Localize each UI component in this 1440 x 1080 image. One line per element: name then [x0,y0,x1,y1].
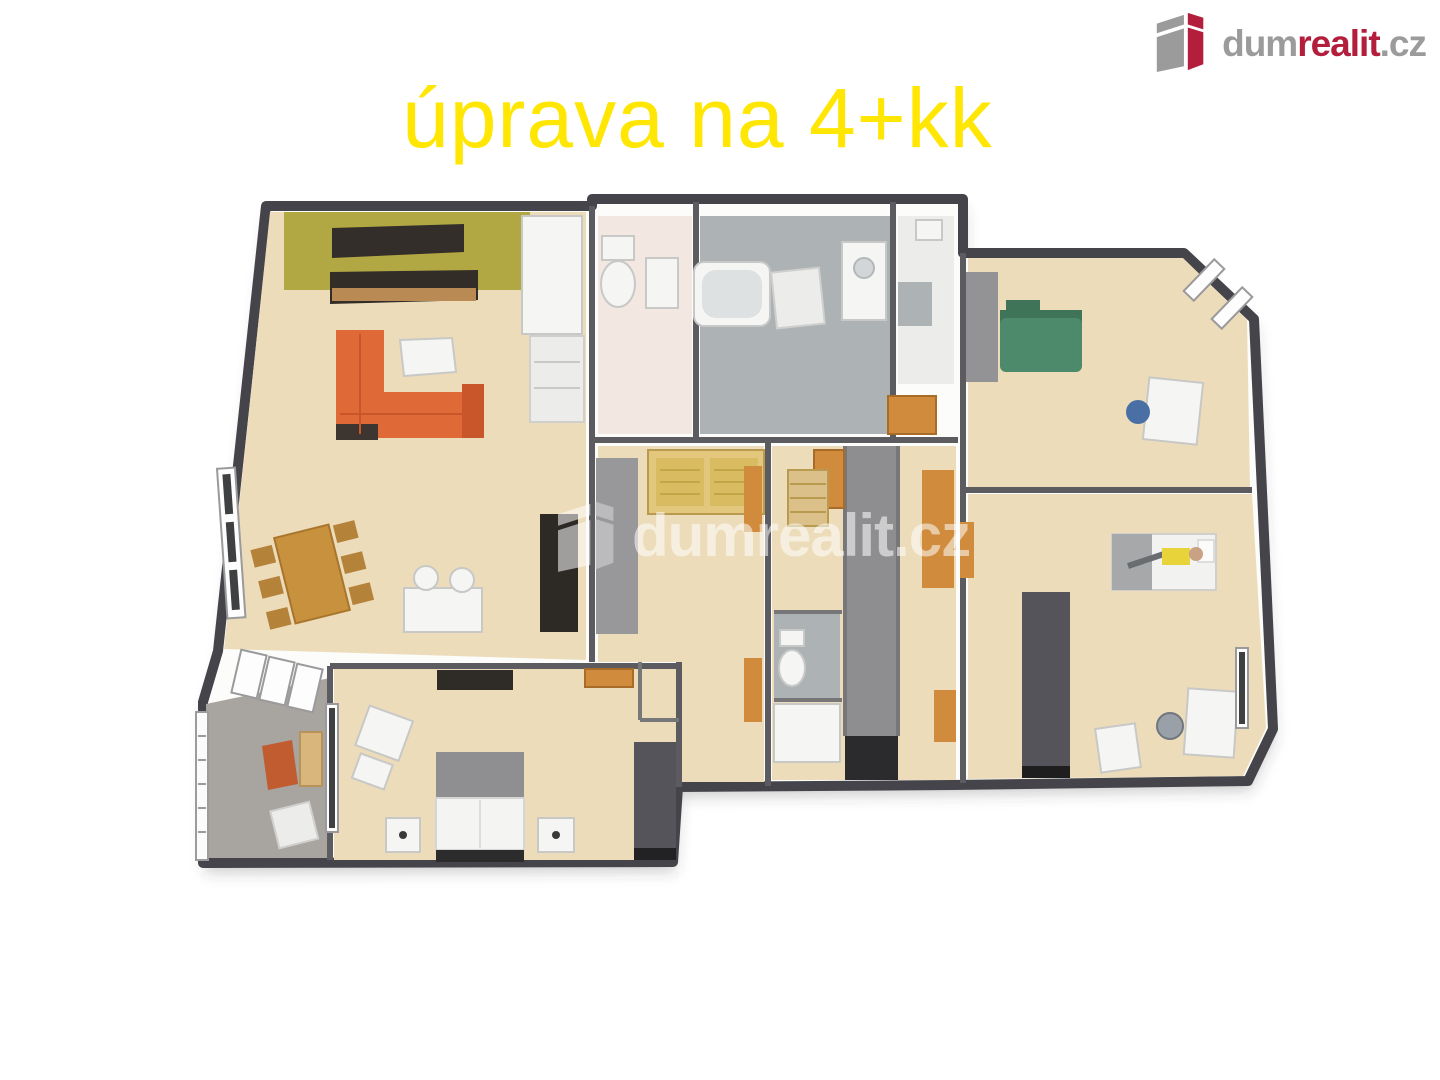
sofa-chaise [1006,300,1040,316]
br-office-chair [1157,713,1183,739]
floorplan-rendering [0,0,1440,1080]
corridor-wardrobe-orange [888,396,936,434]
br-wardrobe-dark [1022,592,1070,778]
shelf-unit [530,336,584,422]
br-white-chair [1095,723,1141,772]
master-tv-niche [437,670,513,690]
tr-desk [1143,377,1203,444]
tr-office-chair [1126,400,1150,424]
wc2-fixtures [779,630,805,686]
toilet-tank [780,630,804,646]
shower-room-tile [898,282,932,326]
shower-tray [774,704,840,762]
toilet-bowl [779,650,805,686]
balcony-table [300,732,322,786]
corridor-bench-orange [922,470,954,588]
towel-pile [771,268,825,329]
white-chair [414,566,438,590]
toilet-tank [602,236,634,260]
bed-duvet [436,752,524,798]
br-window-glass [1239,652,1245,724]
kitchen-unit-dark [540,514,578,632]
lamp [399,831,407,839]
fridge-cabinet [522,216,582,334]
hall-gray-cabinet [596,458,638,634]
master-wardrobe [634,742,676,860]
washing-machine [842,242,886,320]
walkin-closet-floor [845,446,898,736]
tv-panel [332,224,464,258]
washer-door [854,258,874,278]
lounge-chair [262,740,298,790]
balcony-chair [270,802,318,849]
double-bed [436,752,524,862]
bed-base [436,850,524,862]
bedroom-top-right-floor [968,258,1250,488]
sideboard-wood-front [332,288,476,301]
wc-cabinet [646,258,678,308]
bathtub-basin [702,270,762,318]
green-sofa [1000,300,1082,372]
hall-orange-cabinet [744,658,762,722]
white-chair [450,568,474,592]
master-window-glass [329,708,335,828]
tr-wardrobe-gray [966,272,998,382]
lamp [552,831,560,839]
br-desk [1184,688,1238,757]
hall-orange-bench [744,466,762,532]
balcony-railing [196,712,208,860]
master-door [585,669,633,687]
toilet-bowl [601,261,635,307]
sofa-seat [1000,318,1082,372]
br-wardrobe-base [1022,766,1070,778]
br-door-orange [960,522,974,578]
master-wardrobe-base [634,848,676,860]
single-bed-with-person [1112,534,1216,590]
coffee-table [400,338,456,376]
walkin-closet-dark-end [845,736,898,780]
sofa-corner-base [336,424,378,440]
sink [916,220,942,240]
small-white-table [404,588,482,632]
sofa-armrest [462,384,484,438]
person-head [1189,547,1203,561]
person-shirt [1162,548,1190,565]
page: úprava na 4+kk dumrealit.cz [0,0,1440,1080]
corridor-cabinet-orange-low [934,690,956,742]
